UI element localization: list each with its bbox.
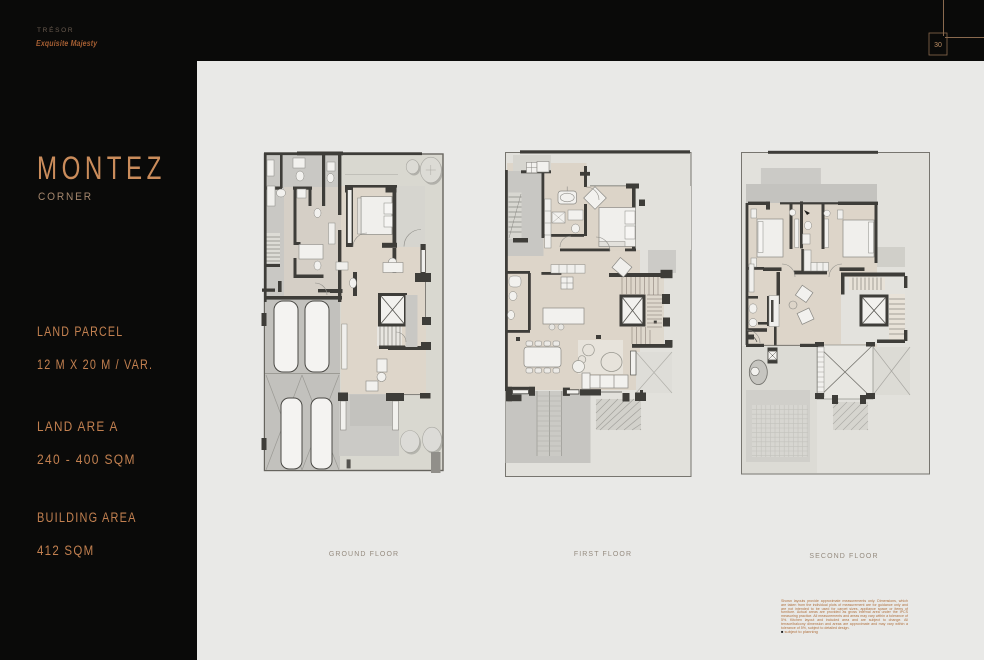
svg-text:30: 30 (934, 42, 942, 49)
